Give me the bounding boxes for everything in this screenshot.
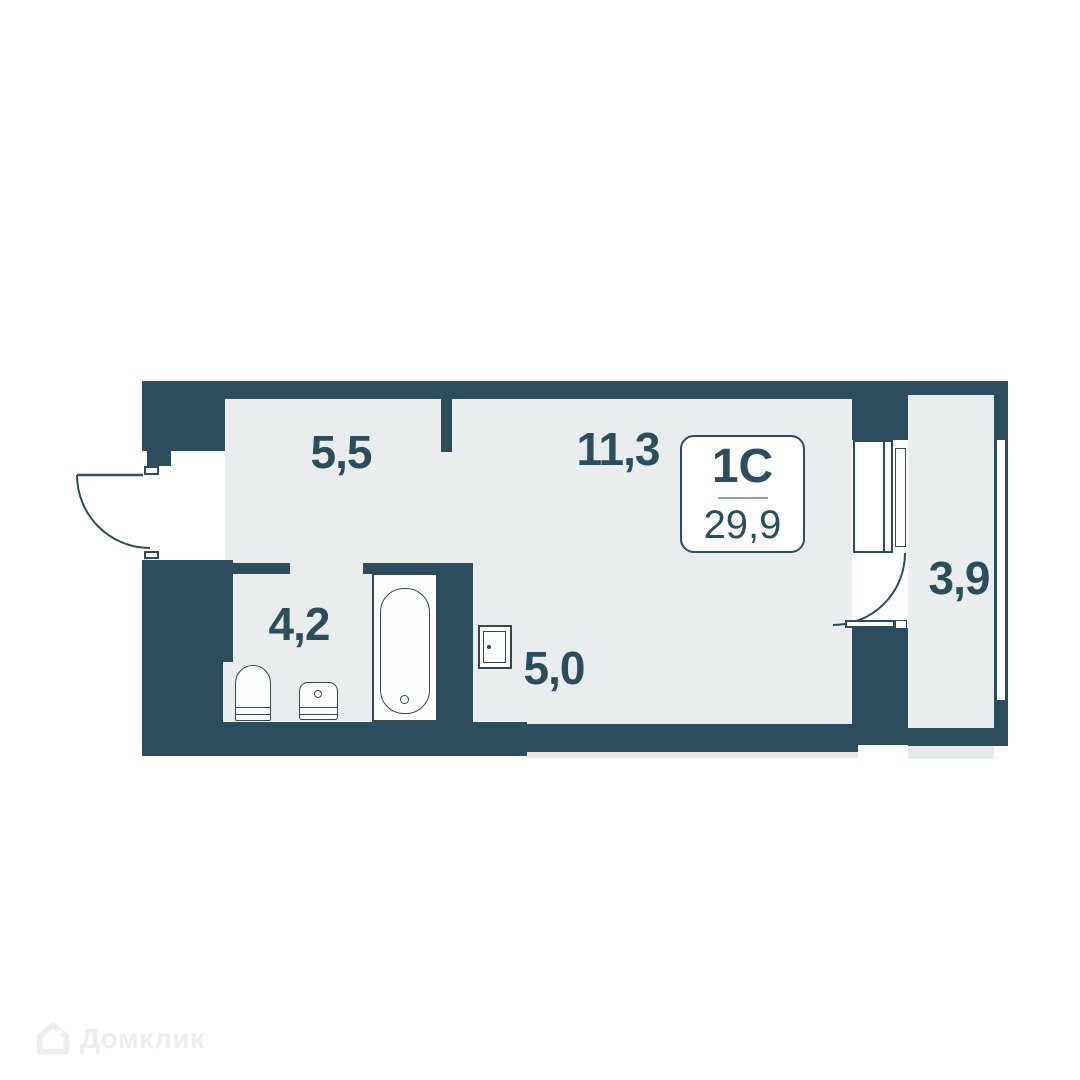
- wall-bathroom-top-left: [233, 563, 290, 574]
- unit-total-area: 29,9: [704, 505, 782, 545]
- wall-top-left-block: [142, 381, 225, 451]
- toilet-base-line-1: [236, 707, 270, 708]
- wall-lower-left-block: [142, 560, 233, 662]
- unit-info-divider: [718, 497, 768, 499]
- room-label-bathroom: 4,2: [239, 601, 359, 647]
- wall-balcony-bottom: [908, 728, 1008, 746]
- lower-floor-ledge-balcony: [908, 746, 994, 759]
- utility-panel-dot: [487, 645, 491, 649]
- sink-base-line-1: [300, 707, 337, 708]
- entrance-door-arc: [77, 475, 150, 548]
- wall-top-left-nub: [147, 451, 171, 466]
- wall-right-lower: [852, 628, 908, 745]
- toilet-base-line-2: [236, 714, 270, 715]
- lower-floor-ledge-main: [527, 752, 858, 758]
- balcony-window-unit: [853, 440, 893, 553]
- watermark-brand-text: Домклик: [80, 1023, 205, 1055]
- toilet: [235, 665, 271, 721]
- wall-stub-hallway-living: [441, 399, 452, 452]
- wall-bottom-right: [527, 724, 858, 752]
- room-label-hallway: 5,5: [281, 429, 401, 475]
- wall-top-main: [142, 381, 908, 399]
- watermark: Домклик: [34, 1022, 205, 1055]
- balcony-window-sidelight: [895, 448, 906, 547]
- entrance-door-frame-top: [144, 466, 159, 475]
- wall-balcony-right-top: [994, 381, 1008, 440]
- sink-faucet-dot: [314, 690, 322, 698]
- room-label-kitchen: 5,0: [494, 645, 614, 691]
- room-label-balcony: 3,9: [899, 555, 1019, 601]
- wall-bottom-left: [142, 722, 527, 756]
- wall-bathroom-right: [437, 563, 473, 723]
- wall-lower-left-block2: [142, 662, 223, 722]
- wall-top-balcony: [908, 381, 1008, 395]
- unit-info-box: 1С 29,9: [680, 435, 805, 553]
- balcony-door-leaf: [845, 620, 895, 628]
- floor-plan-canvas: 5,5 11,3 4,2 5,0 3,9 1С 29,9 Домклик: [0, 0, 1080, 1080]
- balcony-door-frame-stub: [895, 620, 907, 629]
- entrance-door-frame-bottom: [144, 551, 159, 559]
- wall-right-upper: [852, 399, 908, 440]
- domclick-house-icon: [34, 1022, 72, 1055]
- balcony-window-divider: [883, 441, 885, 552]
- unit-type-label: 1С: [712, 443, 773, 491]
- bathtub-drain: [400, 695, 409, 704]
- sink-base-line-2: [300, 714, 337, 715]
- room-label-living: 11,3: [548, 426, 688, 472]
